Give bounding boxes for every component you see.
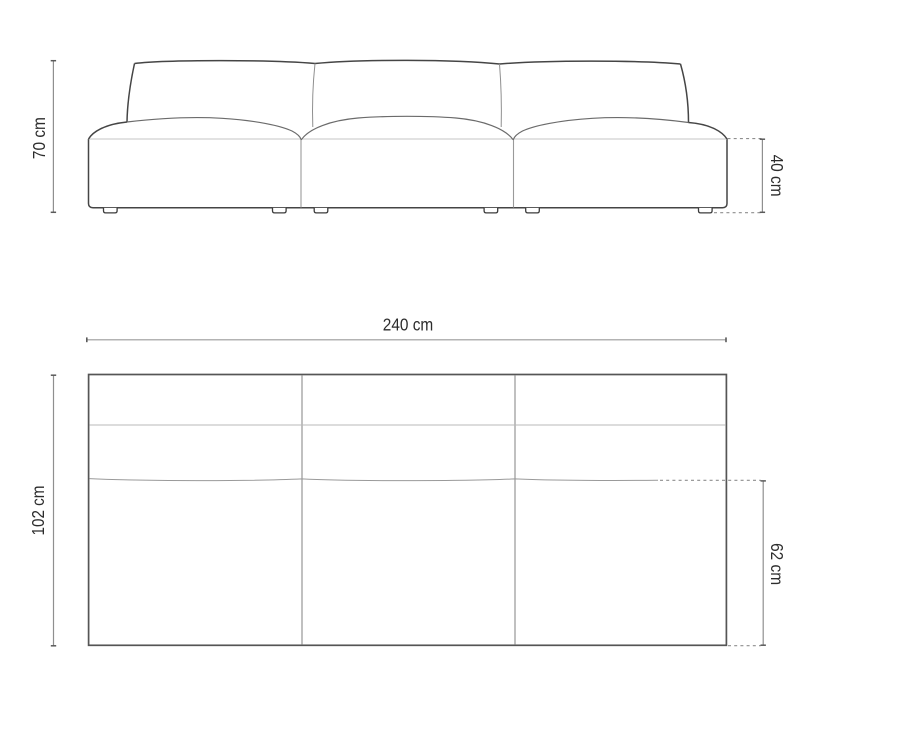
svg-text:40 cm: 40 cm: [767, 155, 787, 197]
svg-text:240 cm: 240 cm: [383, 315, 434, 335]
svg-text:70 cm: 70 cm: [29, 117, 49, 159]
svg-text:62 cm: 62 cm: [767, 543, 787, 585]
svg-text:102 cm: 102 cm: [28, 486, 48, 536]
